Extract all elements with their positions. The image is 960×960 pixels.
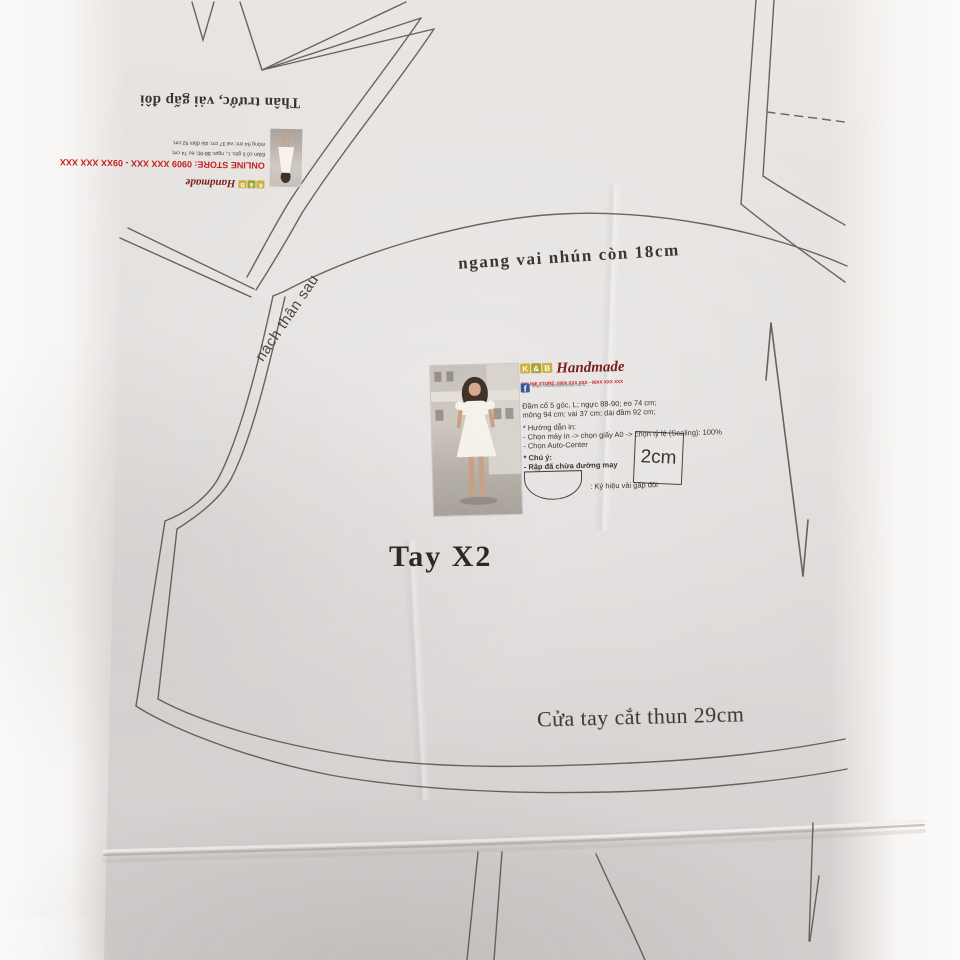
print-guide-step2: - Chọn Auto-Center: [523, 440, 588, 451]
fold-symbol-label: : Ký hiệu vải gấp đôi: [590, 480, 658, 491]
mini-dress-photo: [269, 129, 302, 188]
facebook-row: f https://www.facebook.com/…: [521, 379, 648, 392]
model-dress-skirt: [278, 147, 294, 173]
bottom-left-glare: [0, 918, 130, 960]
model-leg: [479, 457, 485, 499]
sewing-pattern-photo: ngang vai nhún còn 18cm nách thân sau Ta…: [0, 0, 960, 960]
brand-logo: K & B Handmade: [164, 174, 264, 189]
facebook-url-text: https://www.facebook.com/…: [532, 382, 590, 389]
front-bodice-label: Thân trước, vải gấp đôi: [136, 91, 304, 111]
right-paper-edge-glare: [828, 0, 960, 960]
ground-shadow: [460, 496, 498, 505]
dress-photo: [430, 364, 522, 516]
window-shape: [435, 410, 443, 421]
model-arm: [457, 410, 463, 428]
facebook-url: https://www.facebook.com/…: [531, 375, 647, 396]
window-shape: [434, 372, 441, 382]
brand-chip-b: B: [238, 180, 246, 188]
upper-right-piece-lines: [741, 0, 845, 282]
brand-chip-b: B: [542, 363, 552, 373]
shoulder-curve-label: ngang vai nhún còn 18cm: [458, 240, 681, 274]
mini-info-column: K & B Handmade ONLINE STORE: 0909 XXX XX…: [164, 119, 265, 189]
fold-symbol-row: : Ký hiệu vải gấp đôi: [524, 468, 658, 500]
info-block: K & B Handmade ONLINE STORE: 0909 XXX XX…: [426, 352, 740, 520]
model-leg: [283, 133, 285, 147]
paper-bottom-edge: [104, 821, 924, 861]
window-shape: [493, 408, 501, 419]
shoulder-dart-lines: [192, 2, 214, 40]
back-armhole-label: nách thân sau: [252, 271, 322, 364]
grainline-arrow: [766, 323, 808, 576]
size-description-line1: Đầm cổ 5 góc, L; ngực 88-90; eo 74 cm;: [207, 151, 265, 158]
mini-info-block-upside-down: K & B Handmade ONLINE STORE: 0909 XXX XX…: [161, 119, 302, 189]
facebook-icon: f: [521, 383, 530, 392]
paper-crease: [401, 540, 431, 800]
lower-sheet-lines: [467, 823, 819, 960]
fold-dashed-line: [767, 112, 845, 122]
model-leg: [469, 457, 475, 499]
brand-chip-k: K: [520, 363, 530, 373]
store-phone-text: ONLINE STORE: 0909 XXX XXX - 09XX XXX XX…: [60, 157, 265, 171]
model-face: [469, 383, 481, 396]
piece-name-label: Tay X2: [389, 540, 492, 574]
size-description-line2: mông 94 cm; vai 37 cm; dài đầm 92 cm;: [207, 141, 265, 148]
left-paper-edge-glare: [0, 0, 126, 960]
brand-chip-k: K: [256, 180, 264, 188]
brand-chip-amp: &: [247, 180, 255, 188]
hem-measure-label: Cửa tay cắt thun 29cm: [537, 701, 745, 732]
window-shape: [505, 408, 513, 419]
model-leg: [287, 133, 289, 147]
brand-chip-amp: &: [531, 363, 541, 373]
window-shape: [446, 371, 453, 381]
fold-symbol-icon: [524, 470, 583, 501]
store-phone-line: ONLINE STORE: 0909 XXX XXX - 09XX XXX XX…: [165, 156, 265, 176]
brand-script-name: Handmade: [185, 177, 235, 188]
